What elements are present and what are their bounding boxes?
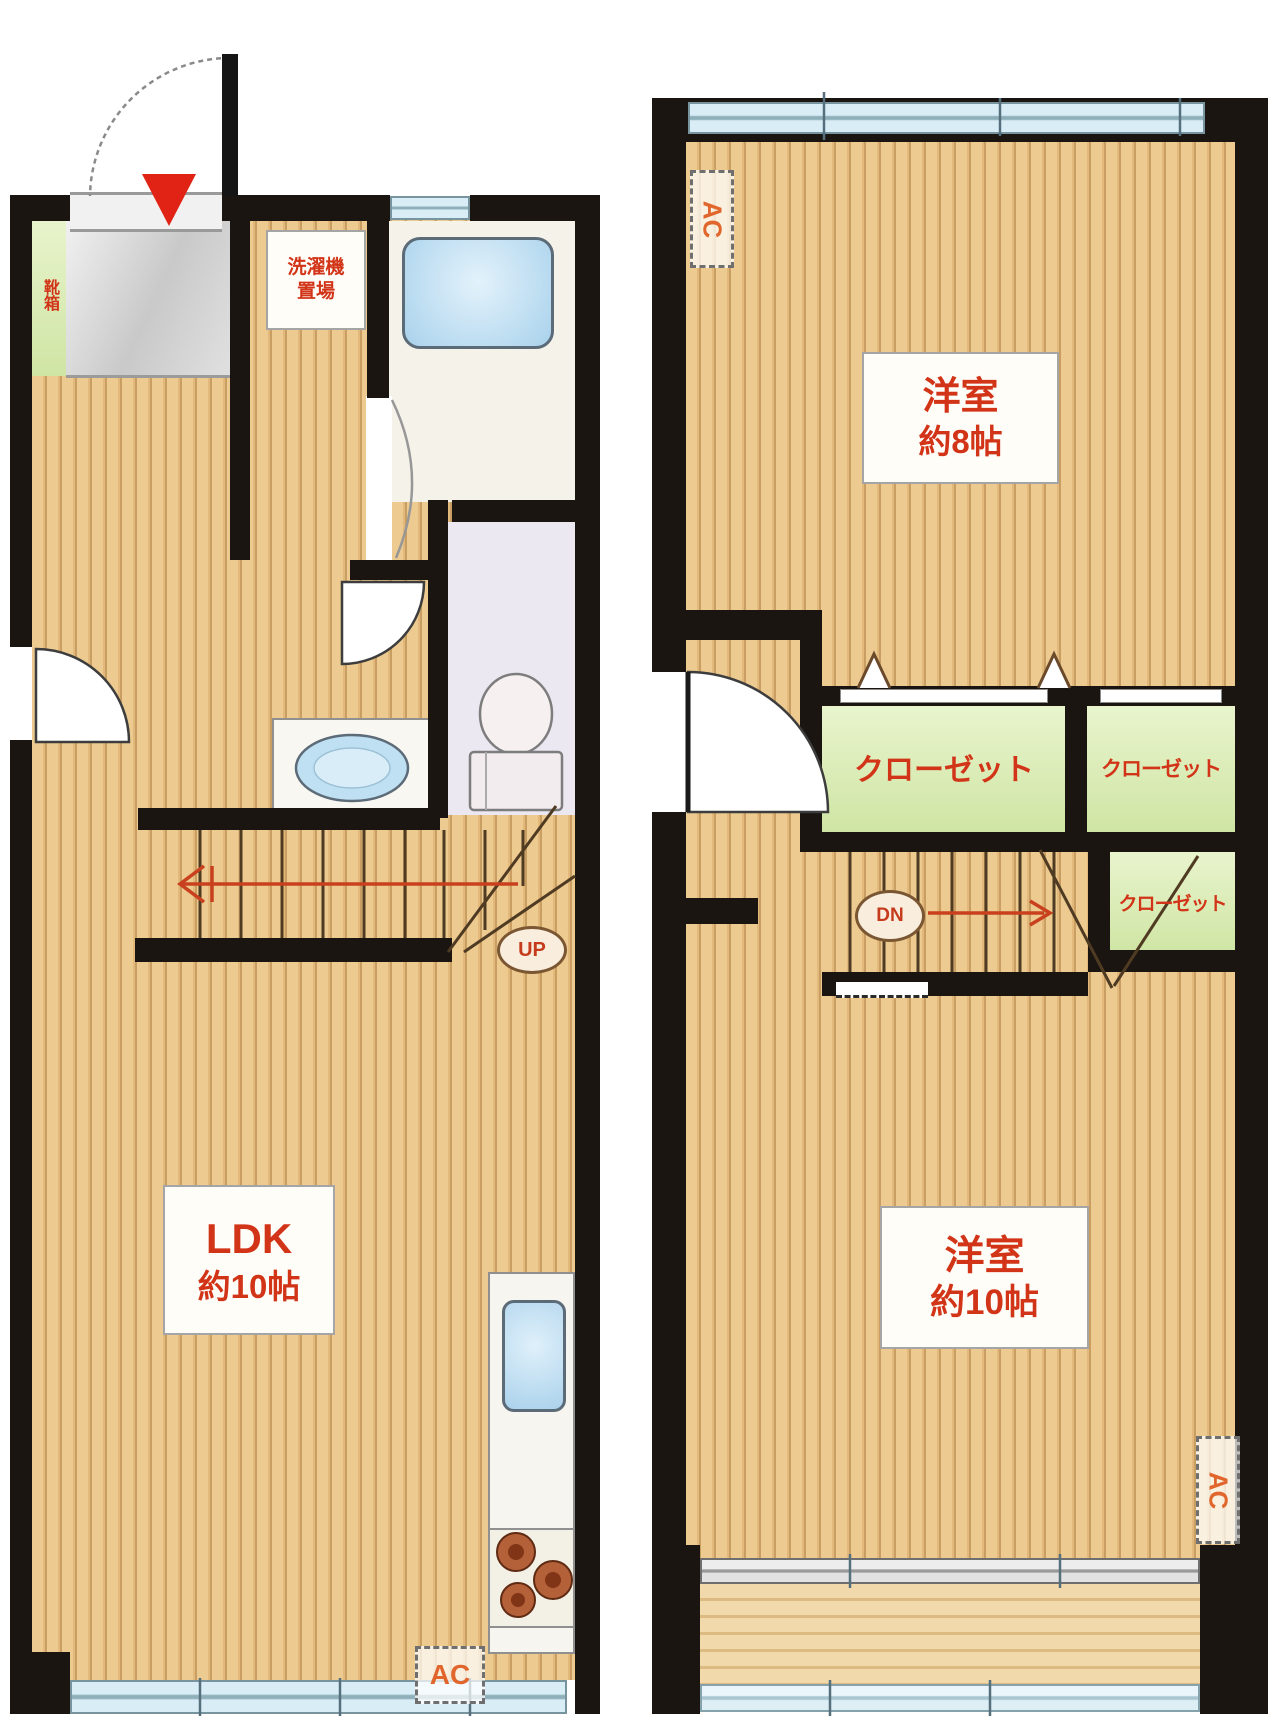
stairs-bottom-wall [135, 938, 452, 962]
floor1-left-wall [10, 740, 32, 1714]
floor2-left-wall [652, 98, 686, 672]
entrance-partition-wall [230, 212, 250, 560]
shoe-cabinet-label: 靴箱 [37, 279, 61, 311]
toilet-room-floor [447, 522, 575, 815]
stairs-down-marker: DN [855, 890, 925, 942]
room10-sliding-window [700, 1558, 1200, 1584]
room10-name: 洋室 [945, 1231, 1025, 1281]
room10-label: 洋室 約10帖 [880, 1206, 1089, 1349]
stairs-top-wall [138, 808, 440, 830]
bath-door-opening [366, 396, 392, 566]
toilet-left-wall [428, 500, 448, 818]
floor-plan-canvas: 靴箱 洗濯機 置場 LDK 約10帖 UP AC [0, 0, 1280, 1720]
stairs-threshold [836, 982, 928, 998]
closet-left-label: クローゼット [832, 744, 1056, 790]
balcony-right-wall [1200, 1545, 1268, 1714]
bathroom-left-wall [367, 196, 389, 398]
stove-unit [488, 1528, 575, 1628]
floor1-bottom-window [70, 1680, 567, 1714]
floor1-right-wall [575, 195, 600, 1714]
bathroom-bottom-wall [452, 500, 575, 522]
closet-divider-wall [1065, 686, 1087, 850]
stairs-up-marker: UP [497, 926, 567, 974]
entry-door-arc [90, 58, 230, 196]
room10-size: 約10帖 [930, 1281, 1039, 1325]
shoe-cabinet: 靴箱 [32, 214, 66, 376]
closet-left-side-wall [800, 610, 822, 850]
closets-bottom-wall [800, 832, 1235, 852]
bathtub [402, 237, 554, 349]
ldk-name: LDK [206, 1213, 292, 1266]
balcony-railing [700, 1684, 1200, 1712]
closet-left-door-track [840, 689, 1048, 703]
washroom-top-wall [350, 560, 430, 580]
room8-label: 洋室 約8帖 [862, 352, 1059, 484]
balcony-deck [700, 1584, 1200, 1684]
laundry-space-label: 洗濯機 置場 [266, 230, 366, 330]
closet-lower-label: クローゼット [1112, 882, 1233, 922]
closet-lower-bottom-wall [1088, 950, 1235, 972]
kitchen-sink [502, 1300, 566, 1412]
balcony-left-wall [652, 1545, 700, 1714]
floor2-top-window [688, 102, 1205, 134]
ldk-label: LDK 約10帖 [163, 1185, 335, 1335]
hall-top-wall [686, 610, 802, 640]
room8-size: 約8帖 [918, 421, 1002, 462]
entry-door-leaf [222, 54, 238, 196]
ldk-size: 約10帖 [198, 1266, 301, 1307]
room8-name: 洋室 [922, 374, 998, 422]
floor1-ac-marker: AC [415, 1646, 485, 1704]
entrance-threshold [70, 192, 222, 232]
floor1-bottom-corner-wall [32, 1652, 70, 1714]
closet-right-label: クローゼット [1089, 748, 1233, 788]
vanity-counter [272, 718, 432, 815]
floor2-ac-top-marker: AC [690, 170, 734, 268]
closet-right-door-track [1100, 689, 1222, 703]
bathroom-window [390, 196, 470, 220]
floor1-left-wall [10, 195, 32, 647]
hall-stub-wall [686, 898, 758, 924]
floor2-ac-right-marker: AC [1196, 1436, 1240, 1544]
